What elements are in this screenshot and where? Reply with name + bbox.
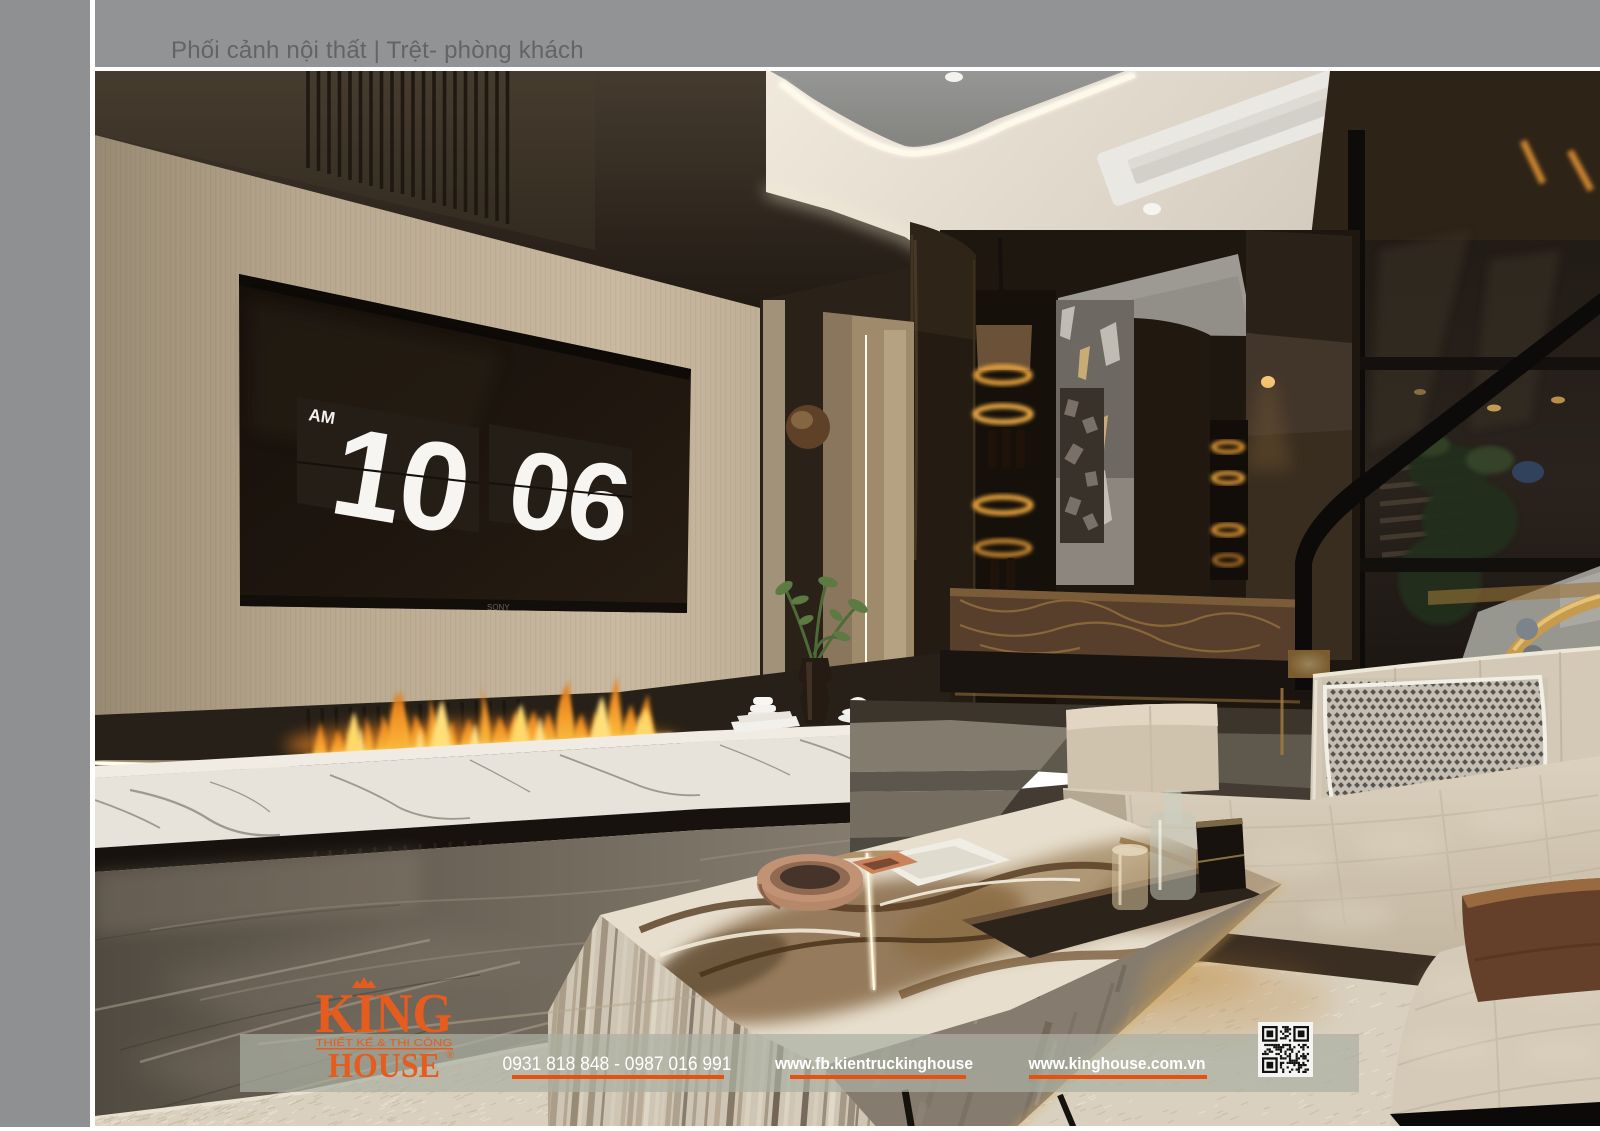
svg-text:®: ® [446,1049,454,1061]
svg-text:www.fb.kientruckinghouse: www.fb.kientruckinghouse [774,1054,973,1073]
svg-text:KING: KING [316,983,453,1045]
svg-text:0931 818 848 - 0987 016 991: 0931 818 848 - 0987 016 991 [503,1054,732,1075]
svg-text:www.kinghouse.com.vn: www.kinghouse.com.vn [1028,1054,1206,1073]
svg-text:SONY: SONY [487,603,510,612]
svg-text:HOUSE: HOUSE [328,1046,440,1085]
svg-text:06: 06 [500,426,637,567]
